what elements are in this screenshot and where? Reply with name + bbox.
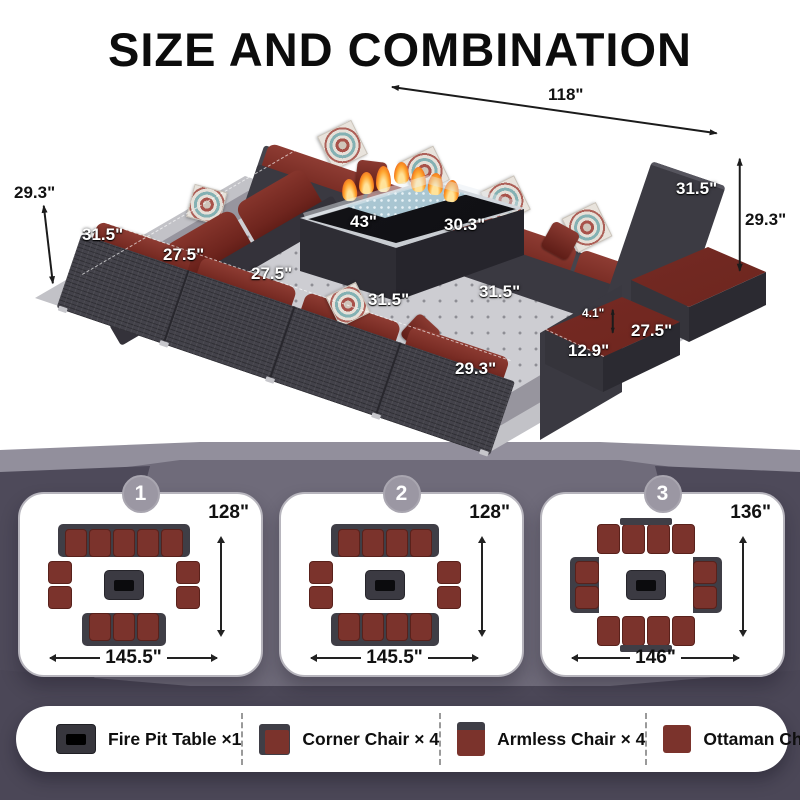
seat-cushion <box>362 529 384 557</box>
seat-cushion <box>647 616 670 646</box>
legend-item-fire-pit-table: Fire Pit Table ×1 <box>56 713 241 765</box>
seat-cushion <box>161 529 183 557</box>
layout-cards: 1 128" 145.5" 2 128" <box>18 492 785 677</box>
diagram-left-column <box>48 561 72 609</box>
seat-cushion <box>622 524 645 554</box>
diagram-right-column <box>437 561 461 609</box>
diagram-bottom-row <box>82 613 166 646</box>
diagram-right-column <box>176 561 200 609</box>
backrest-tab <box>620 518 672 525</box>
vertical-dim-arrow <box>737 536 749 637</box>
card-number-badge: 3 <box>644 475 682 513</box>
legend-item-armless-chair: Armless Chair × 4 <box>439 713 645 765</box>
legend-label: Corner Chair × 4 <box>302 729 439 750</box>
width-dimension-label: 145.5" <box>105 647 162 669</box>
seat-cushion <box>48 586 72 609</box>
dim-43-label: 43" <box>350 212 377 232</box>
diagram-top-row <box>58 524 190 557</box>
dim-27-5-ottoman-label: 27.5" <box>631 321 672 341</box>
seat-cushion <box>622 616 645 646</box>
card-number-badge: 2 <box>383 475 421 513</box>
horizontal-dim-arrow: 145.5" <box>311 647 478 669</box>
dim-29-3-left-label: 29.3" <box>14 183 55 203</box>
legend-item-corner-chair: Corner Chair × 4 <box>241 713 439 765</box>
seat-cushion <box>338 613 360 641</box>
layout-card-2: 2 128" 145.5" <box>279 492 524 677</box>
layout-card-1: 1 128" 145.5" <box>18 492 263 677</box>
seat-cushion <box>65 529 87 557</box>
diagram-bottom-row <box>331 613 439 646</box>
horizontal-dim-arrow: 146" <box>572 647 739 669</box>
legend-bar: Fire Pit Table ×1 Corner Chair × 4 Armle… <box>16 706 788 772</box>
diagram-top-row <box>597 524 695 554</box>
seat-cushion <box>647 524 670 554</box>
seat-cushion <box>137 613 159 641</box>
seat-cushion <box>362 613 384 641</box>
seat-cushion <box>575 586 599 609</box>
fire-pit-burner <box>636 580 656 591</box>
corner-chair-icon <box>259 724 290 755</box>
seat-cushion <box>693 586 717 609</box>
dim-31-5-arm-label: 31.5" <box>676 179 717 199</box>
seat-cushion <box>410 613 432 641</box>
floorplan-diagram <box>309 524 461 646</box>
width-dimension-label: 146" <box>635 647 676 669</box>
seat-cushion <box>597 616 620 646</box>
horizontal-dim-arrow: 145.5" <box>50 647 217 669</box>
fire-pit-table-top <box>626 570 666 600</box>
legend-label: Fire Pit Table ×1 <box>108 729 241 750</box>
seat-cushion <box>137 529 159 557</box>
flame <box>394 162 409 184</box>
dim-4-1-label: 4.1" <box>582 306 604 320</box>
dim-arrow-29-3-left <box>43 206 54 284</box>
vertical-dim-arrow <box>215 536 227 637</box>
fire-pit-burner <box>114 580 134 591</box>
diagram-top-row <box>331 524 439 557</box>
ottaman-chair-icon <box>663 725 691 753</box>
seat-cushion <box>176 561 200 584</box>
seat-cushion <box>113 529 135 557</box>
seat-cushion <box>410 529 432 557</box>
dim-31-5-left-label: 31.5" <box>82 225 123 245</box>
height-dimension-label: 128" <box>208 502 249 524</box>
diagram-left-column <box>309 561 333 609</box>
height-dimension-label: 136" <box>730 502 771 524</box>
dim-118-label: 118" <box>548 85 584 105</box>
fire-pit-table-top <box>104 570 144 600</box>
dim-29-3-right-label: 29.3" <box>745 210 786 230</box>
floorplan-diagram <box>48 524 200 646</box>
dim-arrow-4-1 <box>612 310 614 333</box>
seat-cushion <box>48 561 72 584</box>
floorplan-diagram <box>570 524 722 646</box>
seat-cushion <box>597 524 620 554</box>
fire-pit-table-top <box>365 570 405 600</box>
seat-cushion <box>693 561 717 584</box>
dim-30-3-label: 30.3" <box>444 215 485 235</box>
width-dimension-label: 145.5" <box>366 647 423 669</box>
seat-cushion <box>89 613 111 641</box>
armless-chair-icon <box>457 722 485 756</box>
height-dimension-label: 128" <box>469 502 510 524</box>
product-photo: 118" 29.3" 31.5" 27.5" 27.5" 31.5" 31.5"… <box>0 85 800 460</box>
seat-cushion <box>672 616 695 646</box>
seat-cushion <box>176 586 200 609</box>
diagram-bottom-row <box>597 616 695 646</box>
seat-cushion <box>386 613 408 641</box>
seat-cushion <box>437 561 461 584</box>
seat-cushion <box>309 561 333 584</box>
seat-cushion <box>89 529 111 557</box>
dim-29-3-front-label: 29.3" <box>455 359 496 379</box>
dim-31-5-front-label: 31.5" <box>368 290 409 310</box>
seat-cushion <box>437 586 461 609</box>
seat-cushion <box>575 561 599 584</box>
bottom-section: 1 128" 145.5" 2 128" <box>0 420 800 800</box>
legend-item-ottaman-chair: Ottaman Chair × 4 <box>645 713 800 765</box>
fire-pit-table-icon <box>56 724 96 754</box>
seat-cushion <box>672 524 695 554</box>
page-title: SIZE AND COMBINATION <box>0 22 800 77</box>
diagram-middle-row <box>570 554 722 616</box>
seat-cushion <box>113 613 135 641</box>
flame <box>359 172 374 194</box>
legend-label: Armless Chair × 4 <box>497 729 645 750</box>
dim-27-5-b-label: 27.5" <box>251 264 292 284</box>
dim-arrow-29-3-right <box>739 159 741 271</box>
seat-cushion <box>309 586 333 609</box>
dim-12-9-label: 12.9" <box>568 341 609 361</box>
dim-31-5-corner-label: 31.5" <box>479 282 520 302</box>
seat-cushion <box>386 529 408 557</box>
vertical-dim-arrow <box>476 536 488 637</box>
diagram-middle-row <box>48 557 200 613</box>
card-number-badge: 1 <box>122 475 160 513</box>
diagram-left-column <box>570 557 599 613</box>
seat-cushion <box>338 529 360 557</box>
legend-label: Ottaman Chair × 4 <box>703 729 800 750</box>
fire-pit-burner <box>375 580 395 591</box>
diagram-middle-row <box>309 557 461 613</box>
layout-card-3: 3 136" 146" <box>540 492 785 677</box>
dim-27-5-a-label: 27.5" <box>163 245 204 265</box>
infographic: SIZE AND COMBINATION <box>0 0 800 800</box>
diagram-right-column <box>693 557 722 613</box>
